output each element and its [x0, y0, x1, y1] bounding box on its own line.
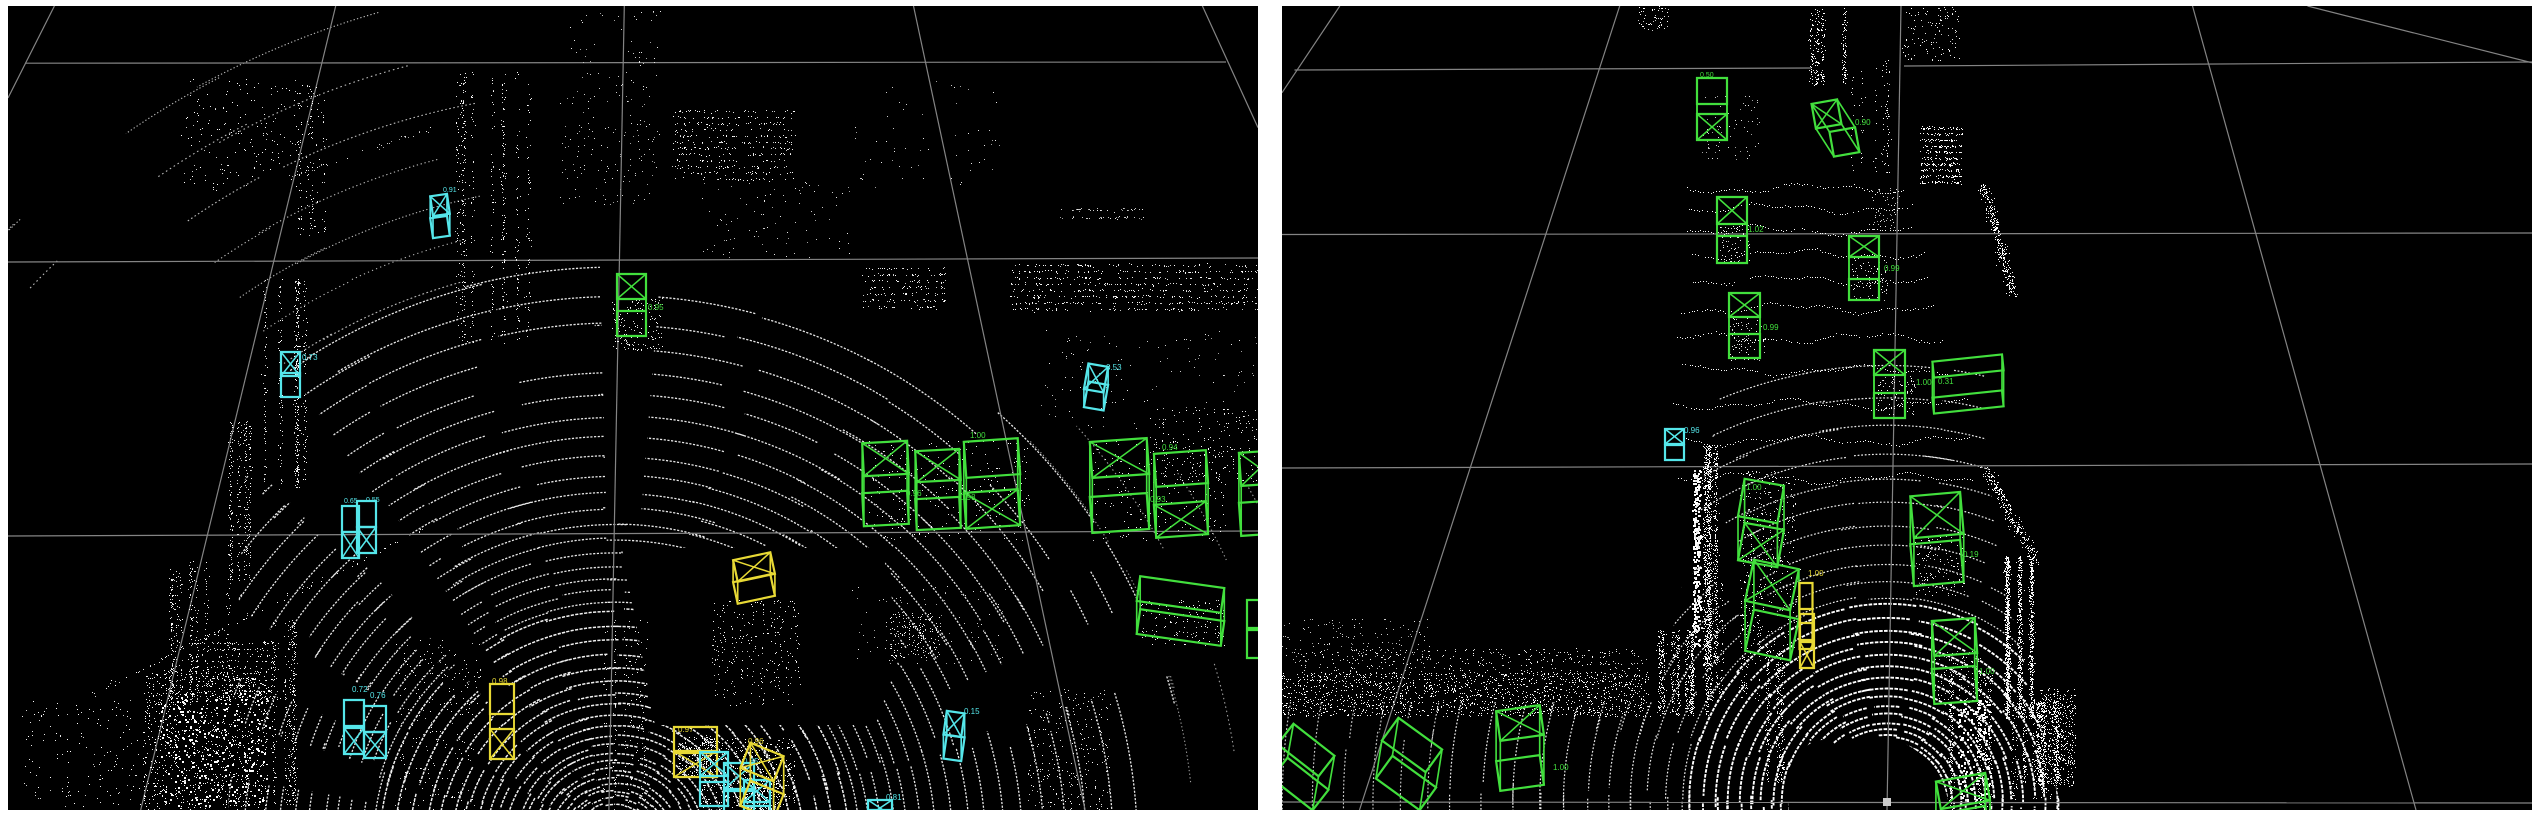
svg-text:0.65: 0.65	[344, 498, 358, 505]
svg-text:0.93: 0.93	[1150, 495, 1166, 504]
svg-text:0.94: 0.94	[1162, 443, 1178, 452]
svg-text:0.19: 0.19	[1963, 550, 1979, 559]
svg-text:0.97: 0.97	[678, 725, 694, 734]
svg-text:1.00: 1.00	[970, 431, 986, 440]
svg-text:0.53: 0.53	[1106, 363, 1122, 372]
svg-text:1.00: 1.00	[1553, 763, 1569, 772]
svg-text:0.73: 0.73	[302, 353, 318, 362]
svg-text:0.15: 0.15	[964, 707, 980, 716]
svg-text:0.55: 0.55	[366, 497, 380, 504]
svg-text:0.81: 0.81	[886, 793, 902, 802]
svg-text:0.91: 0.91	[443, 187, 457, 194]
svg-text:1.00: 1.00	[1979, 667, 1995, 676]
svg-text:0.98: 0.98	[492, 677, 508, 686]
svg-text:0.95: 0.95	[648, 303, 664, 312]
svg-text:0.76: 0.76	[370, 691, 386, 700]
svg-text:0.98: 0.98	[960, 493, 976, 502]
svg-text:1.00: 1.00	[1808, 569, 1824, 578]
svg-text:0.99: 0.99	[1884, 264, 1900, 273]
svg-text:0.90: 0.90	[1855, 118, 1871, 127]
svg-text:0.96: 0.96	[906, 489, 922, 498]
svg-text:0.96: 0.96	[748, 737, 764, 746]
svg-text:0.99: 0.99	[1763, 323, 1779, 332]
svg-text:1.00: 1.00	[1916, 378, 1932, 387]
svg-text:0.72: 0.72	[352, 685, 368, 694]
svg-text:1.02: 1.02	[1748, 225, 1764, 234]
svg-text:0.31: 0.31	[1938, 377, 1954, 386]
svg-text:0.50: 0.50	[1700, 72, 1714, 79]
svg-text:1.00: 1.00	[1746, 483, 1762, 492]
svg-text:0.96: 0.96	[1684, 426, 1700, 435]
